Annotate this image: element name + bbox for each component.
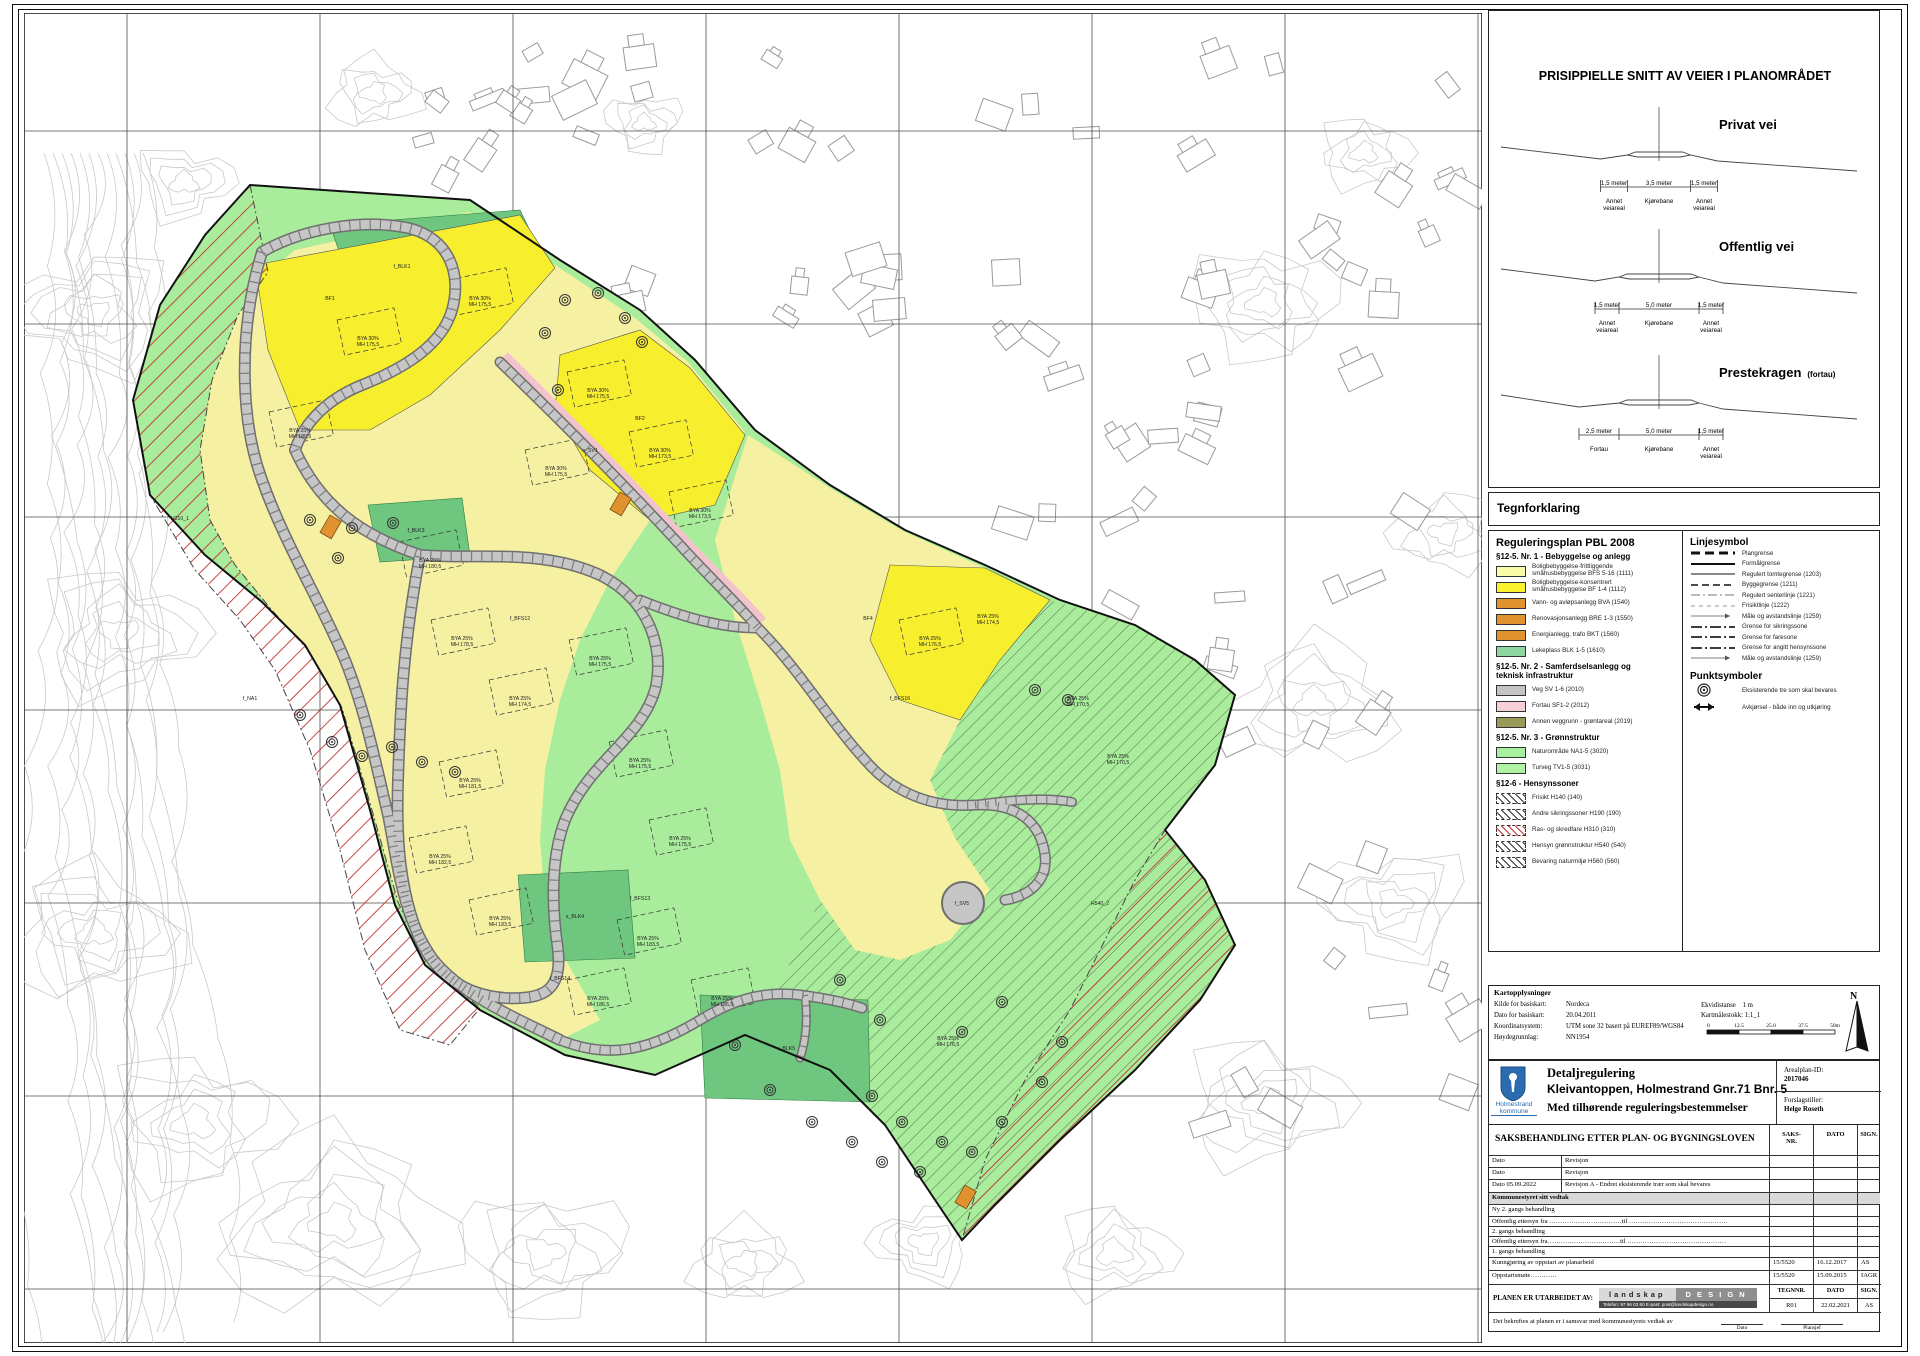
saks-cell: [1857, 1167, 1880, 1179]
legend-item[interactable]: Andre sikringssoner H190 (190): [1496, 806, 1678, 822]
tegnforklaring-header: Tegnforklaring: [1488, 492, 1880, 526]
parcel-label: BYA 25%MH 186,5: [711, 996, 734, 1008]
line-symbol-item[interactable]: Plangrense: [1690, 548, 1876, 559]
saks-row-label: 1. gangs behandling: [1489, 1246, 1769, 1257]
tegnnr-header: DATO: [1813, 1285, 1857, 1298]
legend-label: Frisikt H140 (140): [1532, 795, 1582, 802]
legend-swatch: [1496, 598, 1526, 609]
line-symbol-item[interactable]: Formålgrense: [1690, 559, 1876, 570]
parcel-label: BYA 30%MH 175,5: [357, 336, 380, 348]
segment-label: Annetveiareal: [1700, 320, 1722, 334]
parcel-label: BYA 30%MH 173,5: [689, 508, 712, 520]
dimension-label: 3,5 meter: [1646, 180, 1672, 187]
logo-design: D E S I G N: [1676, 1288, 1757, 1301]
dimension-label: 5,0 meter: [1646, 302, 1672, 309]
legend-item[interactable]: Lekeplass BLK 1-5 (1610): [1496, 643, 1678, 659]
bekreftelse-text: Det bekreftes at planen er i samsvar med…: [1493, 1318, 1673, 1325]
legend-item[interactable]: Boligbebyggelse-frittliggende småhusbeby…: [1496, 563, 1678, 579]
legend-item[interactable]: Hensyn grønnstruktur H540 (540): [1496, 838, 1678, 854]
linjesymbol-legend: Linjesymbol PlangrenseFormålgrenseRegule…: [1690, 537, 1876, 716]
dimension-label: 1,5 meter: [1698, 302, 1724, 309]
legend-group-heading: §12-5. Nr. 3 - Grønnstruktur: [1496, 733, 1678, 742]
legend-item[interactable]: Fortau SF1-2 (2012): [1496, 698, 1678, 714]
north-arrow: N: [1841, 989, 1875, 1055]
legend-item[interactable]: Annen veggrunn - grøntareal (2019): [1496, 714, 1678, 730]
parcel-label: BYA 25%MH 176,5: [937, 1036, 960, 1048]
parcel-label: f_BFS14: [550, 976, 570, 982]
svg-text:N: N: [1850, 991, 1858, 1002]
parcel-label: BYA 25%MH 183,5: [637, 936, 660, 948]
line-symbol-item[interactable]: Måle og avstandslinje (1259): [1690, 653, 1876, 664]
arealplan-id-label: Arealplan-ID:: [1784, 1066, 1823, 1074]
saks-cell: 15.09.2015: [1813, 1270, 1857, 1284]
parcel-label: f_SV5: [955, 901, 969, 907]
saks-row-label: Offentlig ettersyn fra……………………………til …………: [1489, 1236, 1769, 1246]
line-sample: [1690, 591, 1736, 599]
legend-swatch: [1496, 747, 1526, 758]
utarbeidet-label: PLANEN ER UTARBEIDET AV:: [1493, 1294, 1593, 1302]
parcel-label: BYA 25%MH 170,5: [1067, 696, 1090, 708]
forslagstiller-value: Helge Roseth: [1784, 1105, 1823, 1113]
plan-sheet: BYA 30%MH 175,5BYA 25%MH 180,5BYA 30%MH …: [0, 0, 1920, 1356]
line-symbol-item[interactable]: Byggegrense (1211): [1690, 580, 1876, 591]
legend-label: Hensyn grønnstruktur H540 (540): [1532, 843, 1626, 850]
legend-swatch: [1496, 717, 1526, 728]
parcel-label: BYA 25%MH 176,5: [919, 636, 942, 648]
parcel-label: BF1: [325, 296, 335, 302]
saks-cell: [1813, 1167, 1857, 1179]
scale-bar: 012.525.037.550m: [1701, 1021, 1851, 1039]
saks-cell: [1769, 1216, 1813, 1226]
snitt-privat-vei: Privat vei1,5 meter3,5 meter1,5 meterAnn…: [1489, 99, 1881, 221]
legend-group-heading: §12-6 - Hensynssoner: [1496, 779, 1678, 788]
saks-row-revisjon: Revisjon: [1561, 1155, 1769, 1167]
tegnnr-header: TEGNNR.: [1769, 1285, 1813, 1298]
parcel-label: BYA 25%MH 180,5: [419, 558, 442, 570]
parcel-label: BYA 30%MH 175,5: [545, 466, 568, 478]
parcel-label: BYA 25%MH 174,5: [509, 696, 532, 708]
legend-label: Naturområde NA1-5 (3020): [1532, 749, 1608, 756]
line-sample: [1690, 644, 1736, 652]
svg-text:25.0: 25.0: [1766, 1023, 1776, 1029]
dimension-label: 1,5 meter: [1601, 180, 1627, 187]
map-info-row: Kilde for basiskart:Nordeca: [1494, 999, 1694, 1010]
parcel-label: H540_2: [1091, 901, 1109, 907]
line-symbol-label: Frisiktlinje (1222): [1742, 602, 1789, 609]
saks-cell: [1813, 1179, 1857, 1192]
parcel-label: BF2: [635, 416, 645, 422]
dimension-label: 2,5 meter: [1586, 428, 1612, 435]
parcel-label: f_BFS12: [510, 616, 530, 622]
line-symbol-label: Grense for sikringssone: [1742, 623, 1807, 630]
line-symbol-label: Regulert tomtegrense (1203): [1742, 571, 1821, 578]
saks-row-label: Kunngjøring av oppstart av planarbeid: [1489, 1257, 1769, 1270]
parcel-label: f_BLK1: [393, 264, 410, 270]
saks-col-header: SIGN.: [1857, 1125, 1880, 1155]
signature-line-dato[interactable]: Dato: [1721, 1324, 1763, 1331]
saks-cell: [1769, 1192, 1813, 1204]
section-name: Prestekragen: [1719, 365, 1801, 380]
line-symbol-label: Grense for faresone: [1742, 634, 1797, 641]
legend-label: Vann- og avløpsanlegg BVA (1540): [1532, 600, 1630, 607]
legend-swatch: [1496, 630, 1526, 641]
title-block: Holmestrandkommune Detaljregulering Klei…: [1488, 1060, 1880, 1125]
line-sample: [1690, 581, 1736, 589]
legend-label: Ras- og skredfare H310 (310): [1532, 827, 1615, 834]
legend-label: Fortau SF1-2 (2012): [1532, 703, 1589, 710]
legend-swatch: [1496, 646, 1526, 657]
legend-label: Bevaring naturmiljø H560 (560): [1532, 859, 1620, 866]
parcel-label: BYA 25%MH 170,5: [1107, 754, 1130, 766]
plan-type: Detaljregulering: [1547, 1066, 1635, 1081]
line-sample: [1690, 560, 1736, 568]
saks-cell: [1769, 1226, 1813, 1236]
saks-cell: 16.12.2017: [1813, 1257, 1857, 1270]
parcel-label: BYA 25%MH 180,5: [289, 428, 312, 440]
legend-item[interactable]: Naturområde NA1-5 (3020): [1496, 744, 1678, 760]
legend-group-heading: §12-5. Nr. 1 - Bebyggelse og anlegg: [1496, 552, 1678, 561]
legend-swatch: [1496, 566, 1526, 577]
saks-cell: AS: [1857, 1257, 1880, 1270]
line-symbol-item[interactable]: Frisiktlinje (1222): [1690, 601, 1876, 612]
parcel-label: BYA 25%MH 181,5: [459, 778, 482, 790]
snitt-title: PRISIPPIELLE SNITT AV VEIER I PLANOMRÅDE…: [1489, 69, 1881, 83]
saks-cell: [1857, 1236, 1880, 1246]
saks-cell: [1769, 1155, 1813, 1167]
section-name: Privat vei: [1719, 117, 1777, 132]
segment-label: Kjørebane: [1645, 320, 1674, 327]
line-sample: [1690, 602, 1736, 610]
legend-label: Annen veggrunn - grøntareal (2019): [1532, 719, 1632, 726]
legend-box: Reguleringsplan PBL 2008 §12-5. Nr. 1 - …: [1488, 530, 1880, 952]
legend-item[interactable]: Bevaring naturmiljø H560 (560): [1496, 854, 1678, 870]
saks-col-header: SAKS- NR.: [1769, 1125, 1813, 1155]
saks-cell: [1813, 1192, 1857, 1204]
landskap-design-logo: landskap D E S I G N Telefon: 97 96 03 6…: [1599, 1288, 1757, 1308]
saks-cell: 15/5520: [1769, 1270, 1813, 1284]
dimension-label: 1,5 meter: [1698, 428, 1724, 435]
tegnforklaring-title: Tegnforklaring: [1497, 501, 1580, 515]
legend-item[interactable]: Ras- og skredfare H310 (310): [1496, 822, 1678, 838]
parcel-label: BF4: [863, 616, 873, 622]
saks-cell: [1813, 1155, 1857, 1167]
legend-swatch: [1496, 685, 1526, 696]
legend-swatch: [1496, 582, 1526, 593]
segment-label: Kjørebane: [1645, 446, 1674, 453]
legend-swatch: [1496, 809, 1526, 820]
line-sample: [1690, 623, 1736, 631]
saks-cell: [1857, 1246, 1880, 1257]
svg-text:50m: 50m: [1830, 1023, 1841, 1029]
line-symbol-label: Plangrense: [1742, 550, 1773, 557]
saks-row-revisjon: Revisjon: [1561, 1167, 1769, 1179]
saks-cell: [1769, 1246, 1813, 1257]
kommune-logo: [1495, 1065, 1531, 1101]
line-sample: [1690, 570, 1736, 578]
saksbehandling-title: SAKSBEHANDLING ETTER PLAN- OG BYGNINGSLO…: [1495, 1134, 1769, 1144]
line-symbol-item[interactable]: Regulert senterlinje (1221): [1690, 590, 1876, 601]
reguleringsplan-legend: Reguleringsplan PBL 2008 §12-5. Nr. 1 - …: [1496, 537, 1678, 870]
svg-text:12.5: 12.5: [1734, 1023, 1744, 1029]
line-sample: [1690, 633, 1736, 641]
saks-cell: [1813, 1226, 1857, 1236]
logo-contact: Telefon: 97 96 03 60 E-post: post@landsk…: [1599, 1301, 1757, 1308]
segment-label: Annetveiareal: [1693, 198, 1715, 212]
snitt-prestekragen: Prestekragen(fortau)2,5 meter5,0 meter1,…: [1489, 347, 1881, 475]
saks-row-revisjon: Revisjon A - Endret eksisterende trær so…: [1561, 1179, 1769, 1192]
line-symbol-item[interactable]: Grense for angitt hensynssone: [1690, 643, 1876, 654]
legend-label: Boligbebyggelse-frittliggende småhusbeby…: [1532, 564, 1633, 578]
parcel-label: BYA 30%MH 175,5: [587, 388, 610, 400]
saks-row-dato: Dato: [1489, 1167, 1561, 1179]
kartopplysninger-title: Kartopplysninger: [1494, 988, 1551, 997]
line-symbol-label: Måle og avstandslinje (1259): [1742, 613, 1821, 620]
legend-label: Energianlegg, trafo BKT (1560): [1532, 632, 1619, 639]
saks-cell: [1769, 1236, 1813, 1246]
punktsymboler-title: Punktsymboler: [1690, 671, 1876, 682]
map-info-row: Dato for basiskart:20.04.2011: [1494, 1010, 1694, 1021]
line-symbol-label: Regulert senterlinje (1221): [1742, 592, 1815, 599]
segment-label: Kjørebane: [1645, 198, 1674, 205]
section-name: Offentlig vei: [1719, 239, 1794, 254]
legend-label: Andre sikringssoner H190 (190): [1532, 811, 1621, 818]
parcel-label: BYA 25%MH 175,5: [669, 836, 692, 848]
parcel-label: f_BLK3: [407, 528, 424, 534]
linjesymbol-title: Linjesymbol: [1690, 537, 1876, 548]
dimension-label: 1,5 meter: [1594, 302, 1620, 309]
map-info-row: Koordinatsystem:UTM sone 32 basert på EU…: [1494, 1021, 1694, 1032]
saks-cell: [1857, 1192, 1880, 1204]
malestokk-row: Kartmålestokk: 1:1_1: [1701, 1012, 1831, 1019]
line-sample: [1690, 612, 1736, 620]
point-symbol-label: Avkjørsel - både inn og utkjøring: [1742, 704, 1831, 711]
legend-label: Veg SV 1-6 (2010): [1532, 687, 1584, 694]
saks-cell: [1857, 1179, 1880, 1192]
legend-label: Turveg TV1-5 (3031): [1532, 765, 1590, 772]
legend-item[interactable]: Veg SV 1-6 (2010): [1496, 682, 1678, 698]
legend-swatch: [1496, 841, 1526, 852]
map-info-row: Høydegrunnlag:NN1954: [1494, 1032, 1694, 1043]
parcel-label: f_BFS16: [890, 696, 910, 702]
signature-line-plansjef[interactable]: Plansjef: [1781, 1324, 1843, 1331]
dimension-label: 5,0 meter: [1646, 428, 1672, 435]
saks-cell: [1857, 1155, 1880, 1167]
svg-text:(fortau): (fortau): [1807, 370, 1835, 379]
line-symbol-label: Måle og avstandslinje (1259): [1742, 655, 1821, 662]
legend-swatch: [1496, 614, 1526, 625]
point-symbol-label: Eksisterende tre som skal bevares: [1742, 687, 1837, 694]
plan-subtitle: Med tilhørende reguleringsbestemmelser: [1547, 1102, 1748, 1114]
reguleringsplan-title: Reguleringsplan PBL 2008: [1496, 537, 1678, 549]
saks-row-vedtak: Kommunestyret sitt vedtak: [1489, 1192, 1769, 1204]
legend-item[interactable]: Renovasjonsanlegg BRE 1-3 (1550): [1496, 611, 1678, 627]
forslagstiller-label: Forslagstiller:: [1784, 1096, 1823, 1104]
parcel-label: s_BLK4: [566, 914, 584, 920]
legend-item[interactable]: Frisikt H140 (140): [1496, 790, 1678, 806]
point-symbol-item[interactable]: Eksisterende tre som skal bevares: [1690, 682, 1876, 699]
parcel-label: BYA 25%MH 183,5: [489, 916, 512, 928]
saks-row-label: 2. gangs behandling: [1489, 1226, 1769, 1236]
tegnnr-value: 22.02.2021: [1813, 1298, 1857, 1313]
saks-cell: [1857, 1216, 1880, 1226]
legend-swatch: [1496, 763, 1526, 774]
ekvidistanse-row: Ekvidistanse 1 m: [1701, 1002, 1831, 1009]
parcel-label: BYA 25%MH 174,5: [977, 614, 1000, 626]
saks-cell: [1813, 1204, 1857, 1216]
saks-cell: [1813, 1236, 1857, 1246]
parcel-label: f_BFS13: [630, 896, 650, 902]
saks-cell: [1769, 1167, 1813, 1179]
saks-cell: [1813, 1216, 1857, 1226]
line-symbol-label: Formålgrense: [1742, 560, 1780, 567]
legend-label: Lekeplass BLK 1-5 (1610): [1532, 648, 1605, 655]
parcel-label: H310_1: [171, 516, 189, 522]
saks-row-dato: Dato 05.09.2022: [1489, 1179, 1561, 1192]
parcel-label: BYA 25%MH 175,5: [629, 758, 652, 770]
legend-item[interactable]: Turveg TV1-5 (3031): [1496, 760, 1678, 776]
legend-label: Renovasjonsanlegg BRE 1-3 (1550): [1532, 616, 1633, 623]
saks-cell: [1857, 1226, 1880, 1236]
segment-label: Annetveiareal: [1603, 198, 1625, 212]
legend-group-heading: §12-5. Nr. 2 - Samferdselsanlegg og tekn…: [1496, 662, 1678, 680]
segment-label: Annetveiareal: [1596, 320, 1618, 334]
saks-row-dato: Dato: [1489, 1155, 1561, 1167]
segment-label: Annetveiareal: [1700, 446, 1722, 460]
saks-col-header: DATO: [1813, 1125, 1857, 1155]
tegnnr-header: SIGN.: [1857, 1285, 1880, 1298]
snitt-box: PRISIPPIELLE SNITT AV VEIER I PLANOMRÅDE…: [1488, 10, 1880, 488]
line-symbol-item[interactable]: Måle og avstandslinje (1259): [1690, 611, 1876, 622]
legend-item[interactable]: Boligbebyggelse-konsentrert småhusbebygg…: [1496, 579, 1678, 595]
legend-swatch: [1496, 857, 1526, 868]
tegnnr-value: AS: [1857, 1298, 1880, 1313]
line-symbol-label: Byggegrense (1211): [1742, 581, 1798, 588]
parcel-label: v_BLK5: [777, 1046, 795, 1052]
plan-name: Kleivantoppen, Holmestrand Gnr.71 Bnr. 5: [1547, 1082, 1787, 1096]
parcel-label: BYA 30%MH 173,5: [649, 448, 672, 460]
parcel-label: BYA 25%MH 186,5: [587, 996, 610, 1008]
legend-label: Boligbebyggelse-konsentrert småhusbebygg…: [1532, 580, 1626, 594]
tegnnr-value: R01: [1769, 1298, 1813, 1313]
line-symbol-item[interactable]: Grense for sikringssone: [1690, 622, 1876, 633]
line-sample: [1690, 549, 1736, 557]
saks-cell: [1769, 1179, 1813, 1192]
line-symbol-item[interactable]: Grense for faresone: [1690, 632, 1876, 643]
point-symbol-item[interactable]: Avkjørsel - både inn og utkjøring: [1690, 699, 1876, 716]
saks-row-label: Offentlig ettersyn fra ……………………………til ………: [1489, 1216, 1769, 1226]
dimension-label: 1,5 meter: [1691, 180, 1717, 187]
saks-cell: 15/5520: [1769, 1257, 1813, 1270]
saks-cell: IAGR: [1857, 1270, 1880, 1284]
line-sample: [1690, 654, 1736, 662]
snitt-offentlig-vei: Offentlig vei1,5 meter5,0 meter1,5 meter…: [1489, 221, 1881, 347]
line-symbol-item[interactable]: Regulert tomtegrense (1203): [1690, 569, 1876, 580]
legend-swatch: [1496, 701, 1526, 712]
svg-text:37.5: 37.5: [1798, 1023, 1808, 1029]
legend-swatch: [1496, 825, 1526, 836]
saks-row-label: Oppstartsmøte…………: [1489, 1270, 1769, 1284]
driveway-arrow-icon: [1690, 699, 1736, 715]
parcel-label: BYA 25%MH 175,5: [589, 656, 612, 668]
legend-divider: [1682, 531, 1683, 951]
parcel-label: f_NA1: [243, 696, 258, 702]
tree-icon: [1690, 682, 1736, 698]
kartopplysninger-box: Kartopplysninger Kilde for basiskart:Nor…: [1488, 985, 1880, 1060]
plan-map[interactable]: BYA 30%MH 175,5BYA 25%MH 180,5BYA 30%MH …: [24, 13, 1482, 1343]
legend-swatch: [1496, 793, 1526, 804]
saks-cell: [1813, 1246, 1857, 1257]
legend-item[interactable]: Energianlegg, trafo BKT (1560): [1496, 627, 1678, 643]
line-symbol-label: Grense for angitt hensynssone: [1742, 644, 1826, 651]
logo-landskap: landskap: [1599, 1288, 1676, 1301]
saksbehandling-table: SAKSBEHANDLING ETTER PLAN- OG BYGNINGSLO…: [1488, 1125, 1880, 1332]
segment-label: Fortau: [1590, 446, 1608, 453]
saks-cell: [1857, 1204, 1880, 1216]
legend-item[interactable]: Vann- og avløpsanlegg BVA (1540): [1496, 595, 1678, 611]
svg-text:0: 0: [1707, 1023, 1710, 1029]
parcel-label: o_SV1: [582, 448, 598, 454]
kommune-name: Holmestrandkommune: [1491, 1101, 1537, 1116]
parcel-label: BYA 30%MH 175,5: [469, 296, 492, 308]
parcel-label: BYA 25%MH 182,5: [429, 854, 452, 866]
arealplan-id-value: 2017046: [1784, 1075, 1809, 1083]
saks-row-label: Ny 2. gangs behandling: [1489, 1204, 1769, 1216]
parcel-label: BYA 25%MH 178,5: [451, 636, 474, 648]
saks-cell: [1769, 1204, 1813, 1216]
